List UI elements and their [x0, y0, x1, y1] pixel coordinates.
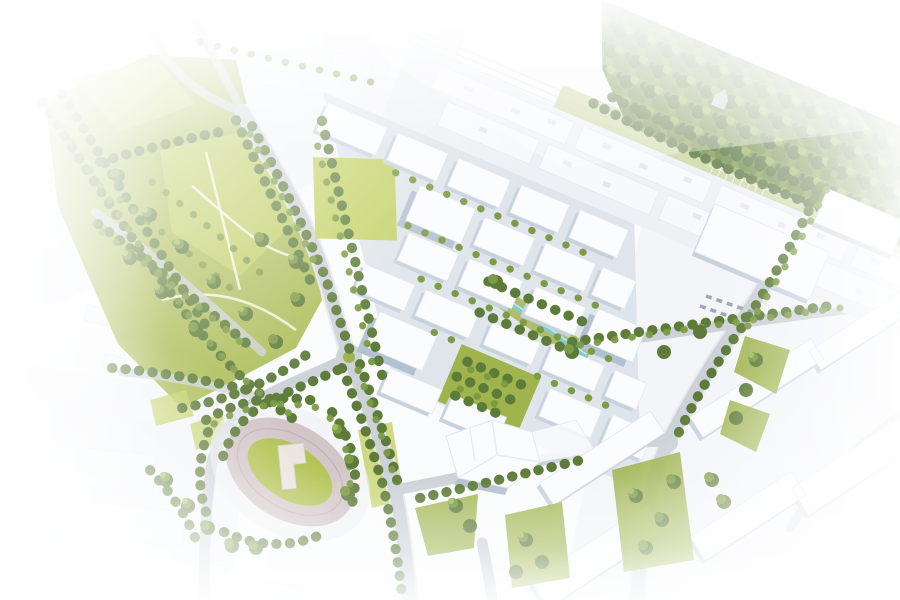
masterplan-aerial-render [0, 0, 900, 600]
masterplan-render-stage [0, 0, 900, 600]
